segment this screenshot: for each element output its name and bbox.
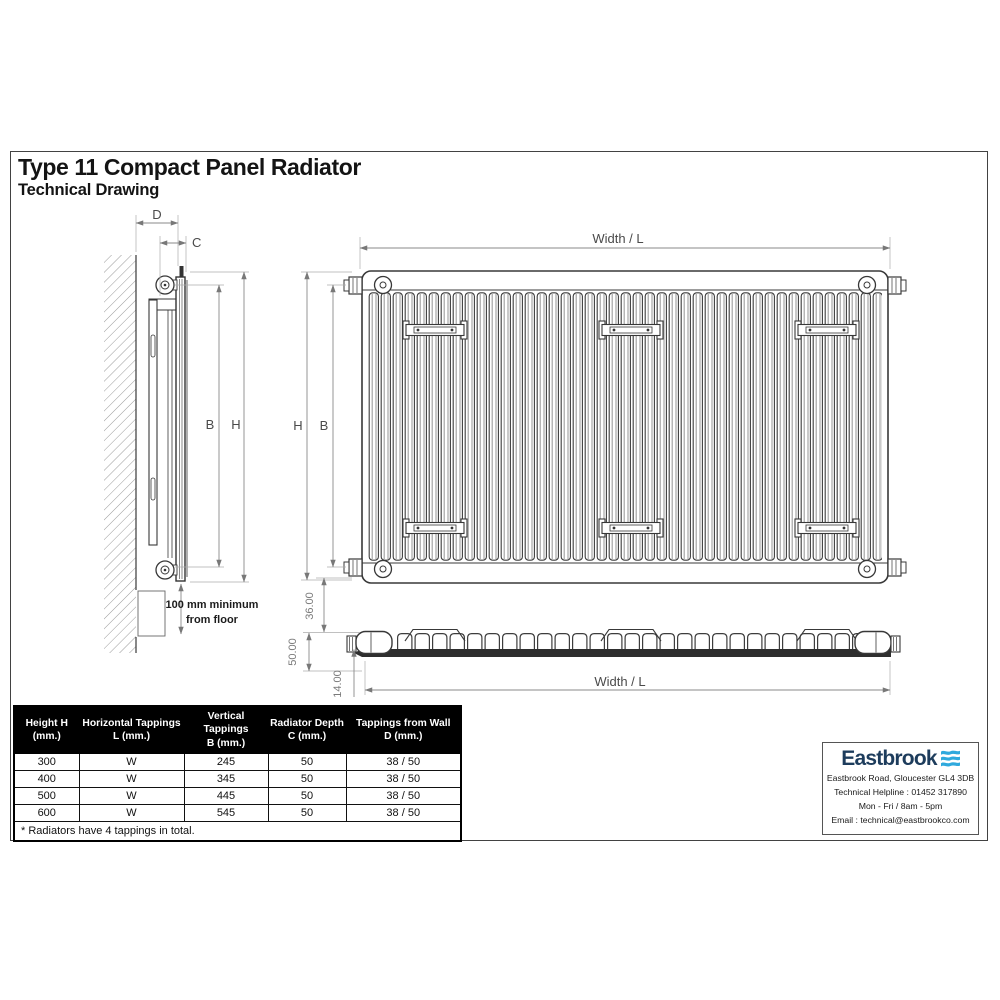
title-block: Type 11 Compact Panel Radiator Technical… [18,155,361,200]
brand-hours: Mon - Fri / 8am - 5pm [826,800,975,814]
table-row: 300W2455038 / 50 [14,754,461,771]
spec-table-header-row: Height H(mm.) Horizontal TappingsL (mm.)… [14,706,461,754]
drawing-sheet: Type 11 Compact Panel Radiator Technical… [0,0,1000,1000]
brand-helpline: Technical Helpline : 01452 317890 [826,786,975,800]
col-header-tappings-from-wall: Tappings from WallD (mm.) [346,706,461,754]
eastbrook-logo: Eastbrook [841,748,937,769]
brand-address: Eastbrook Road, Gloucester GL4 3DB [826,772,975,786]
brand-logo-row: Eastbrook [826,748,975,769]
col-header-vertical-tappings: Vertical TappingsB (mm.) [184,706,268,754]
col-header-radiator-depth: Radiator DepthC (mm.) [268,706,346,754]
col-header-horizontal-tappings: Horizontal TappingsL (mm.) [79,706,184,754]
eastbrook-waves-icon [941,750,960,767]
page-title: Type 11 Compact Panel Radiator [18,155,361,179]
table-footnote-row: * Radiators have 4 tappings in total. [14,822,461,842]
table-footnote: * Radiators have 4 tappings in total. [14,822,461,842]
page-subtitle: Technical Drawing [18,181,361,200]
table-row: 500W4455038 / 50 [14,788,461,805]
brand-box: Eastbrook Eastbrook Road, Gloucester GL4… [822,742,979,835]
table-row: 400W3455038 / 50 [14,771,461,788]
spec-table: Height H(mm.) Horizontal TappingsL (mm.)… [13,705,462,842]
brand-email: Email : technical@eastbrookco.com [826,814,975,828]
col-header-height: Height H(mm.) [14,706,79,754]
table-row: 600W5455038 / 50 [14,805,461,822]
